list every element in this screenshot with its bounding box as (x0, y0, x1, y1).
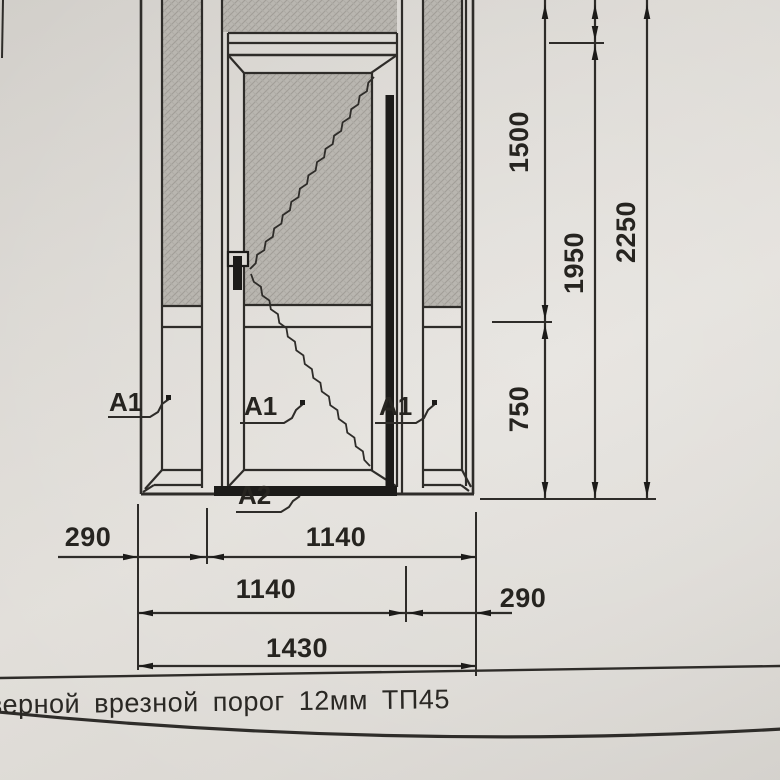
callout-label-a1-right: А1 (379, 391, 441, 421)
transom-glass (223, 0, 397, 32)
dim-label-290-right: 290 (478, 583, 568, 613)
dim-label-750: 750 (504, 364, 534, 454)
door-edge-profile-bar (386, 95, 395, 486)
callout-label-a2-threshold: А2 (238, 480, 300, 510)
callout-label-a1-door: А1 (244, 391, 306, 421)
callout-label-a1-left: А1 (109, 387, 171, 417)
glass-panels (163, 0, 461, 307)
dim-label-1500: 1500 (504, 97, 534, 187)
drawing-photo: А1 А1 А1 А2 1500 750 1950 2250 290 1140 … (0, 0, 780, 780)
title-row-top-border (0, 666, 780, 678)
dim-label-1140-lower: 1140 (221, 574, 311, 604)
left-sidelight-glass (163, 0, 201, 306)
dim-label-1140-upper: 1140 (291, 522, 381, 552)
dim-label-1950: 1950 (559, 218, 589, 308)
dim-label-1430: 1430 (252, 633, 342, 663)
table-border-top-left-tick (2, 0, 3, 58)
dim-label-290-left: 290 (43, 522, 133, 552)
dim-label-2250: 2250 (611, 187, 641, 277)
right-sidelight-glass (424, 0, 461, 307)
